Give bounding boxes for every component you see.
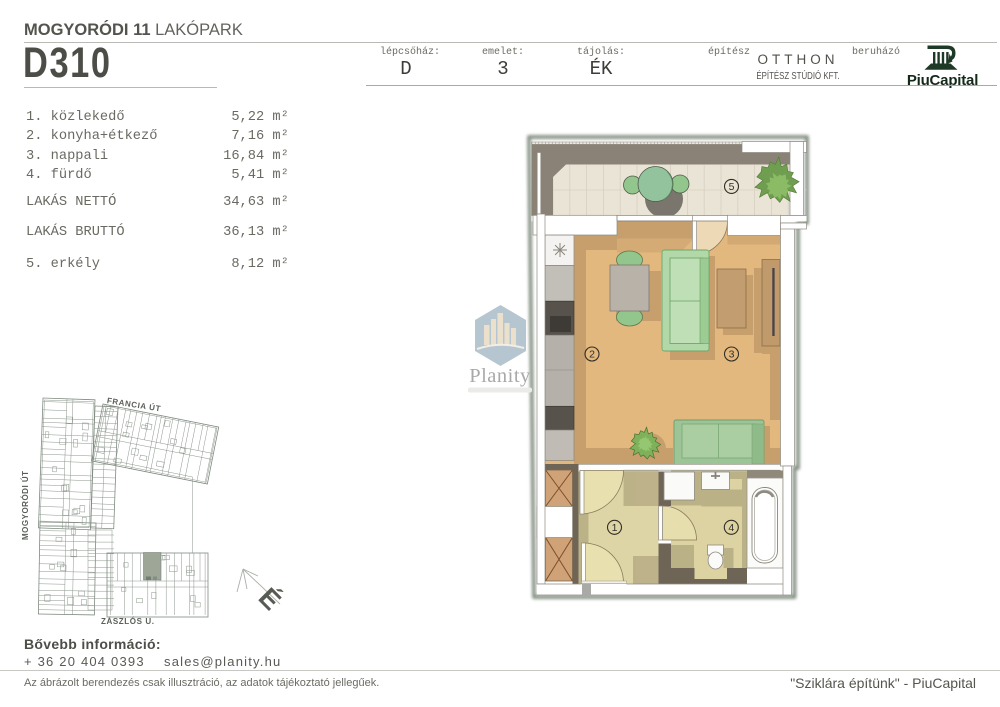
svg-text:4: 4 [728, 522, 734, 534]
svg-text:3: 3 [729, 349, 735, 361]
svg-text:É: É [253, 581, 288, 616]
svg-text:5: 5 [729, 181, 735, 193]
svg-text:1: 1 [612, 522, 618, 534]
svg-text:PiuCapital: PiuCapital [907, 72, 978, 89]
svg-text:2: 2 [589, 349, 595, 361]
svg-text:Planity: Planity [469, 365, 531, 387]
